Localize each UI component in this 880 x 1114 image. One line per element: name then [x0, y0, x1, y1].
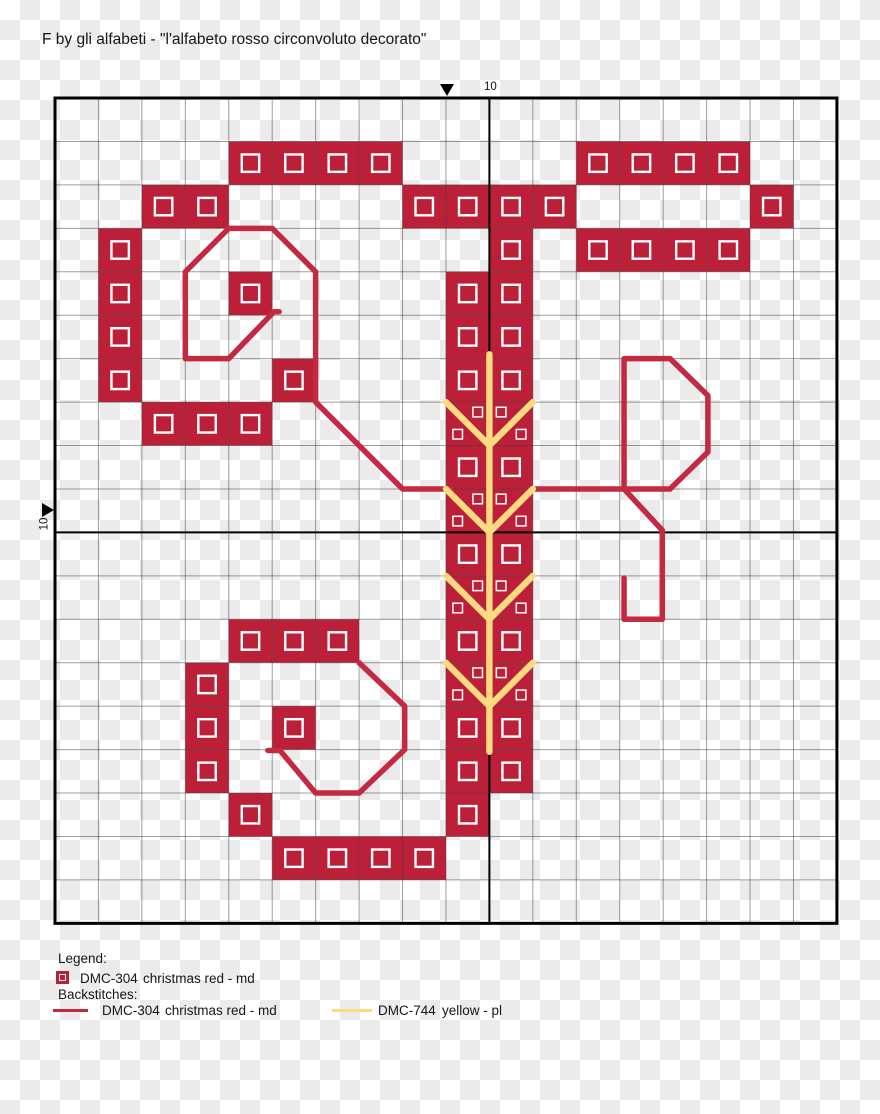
stitch-cell: [446, 315, 489, 358]
stitch-cell: [446, 272, 489, 315]
stitch-cell: [707, 141, 750, 184]
stitch-cell: [229, 619, 272, 662]
stitch-cell: [750, 185, 793, 228]
legend-backstitch-yellow-name: yellow - pl: [442, 1003, 502, 1018]
stitch-cell: [272, 836, 315, 879]
stitch-symbol-icon: [59, 974, 66, 981]
stitch-cell: [446, 750, 489, 793]
stitch-cell: [142, 185, 185, 228]
grid-label-left-10: 10: [38, 518, 50, 531]
stitch-cell: [185, 706, 228, 749]
stitch-cell: [185, 185, 228, 228]
legend-stitch-swatch-icon: [56, 971, 69, 984]
legend-backstitch-red-line-icon: [53, 1009, 88, 1012]
stitch-cell: [98, 228, 141, 271]
stitch-cell: [272, 359, 315, 402]
stitch-cell: [229, 793, 272, 836]
grid-label-top-10: 10: [484, 81, 497, 93]
stitch-cell: [663, 228, 706, 271]
stitch-cell: [272, 619, 315, 662]
legend-heading: Legend:: [58, 951, 107, 966]
legend-backstitch-red-code: DMC-304: [102, 1003, 160, 1018]
backstitch-red: [624, 489, 662, 619]
stitch-cell: [489, 706, 532, 749]
stitch-cell: [446, 185, 489, 228]
stitch-cell: [316, 141, 359, 184]
legend-backstitch-yellow-line-icon: [332, 1009, 372, 1012]
stitch-cell: [98, 315, 141, 358]
stitch-cell: [489, 619, 532, 662]
legend-stitch-name: christmas red - md: [143, 971, 255, 986]
stitch-cell: [229, 141, 272, 184]
stitch-cell: [98, 272, 141, 315]
stitch-cell: [403, 836, 446, 879]
stitch-cell: [489, 315, 532, 358]
stitch-cell: [576, 228, 619, 271]
stitch-cell: [446, 359, 489, 402]
stitch-cell: [272, 141, 315, 184]
stitch-cell: [446, 619, 489, 662]
center-marker-left-arrow-icon: [42, 503, 54, 517]
stitch-cell: [489, 446, 532, 489]
stitch-cell: [316, 836, 359, 879]
stitch-cell: [272, 706, 315, 749]
stitch-cell: [489, 359, 532, 402]
pattern-page: F by gli alfabeti - "l'alfabeto rosso ci…: [0, 0, 880, 1114]
stitch-cell: [489, 750, 532, 793]
stitch-cell: [229, 272, 272, 315]
stitch-cell: [576, 141, 619, 184]
stitch-cell: [620, 141, 663, 184]
legend-backstitch-heading: Backstitches:: [58, 987, 138, 1002]
stitch-cell: [185, 663, 228, 706]
stitch-cell: [446, 532, 489, 575]
legend-backstitch-red-name: christmas red - md: [165, 1003, 277, 1018]
stitch-cell: [489, 532, 532, 575]
stitch-cell: [359, 141, 402, 184]
backstitch-red: [624, 359, 708, 489]
center-marker-top-arrow-icon: [440, 84, 454, 96]
stitch-cell: [489, 272, 532, 315]
legend-backstitch-yellow-code: DMC-744: [378, 1003, 436, 1018]
legend-stitch-code: DMC-304: [80, 971, 138, 986]
stitch-cell: [446, 446, 489, 489]
stitch-cell: [533, 185, 576, 228]
stitch-cell: [185, 750, 228, 793]
stitch-cell: [707, 228, 750, 271]
stitch-cell: [98, 359, 141, 402]
stitch-cell: [142, 402, 185, 445]
stitch-cell: [663, 141, 706, 184]
cross-stitch-chart: [0, 0, 880, 1114]
stitch-cell: [185, 402, 228, 445]
stitch-cell: [489, 228, 532, 271]
stitch-cell: [489, 185, 532, 228]
stitch-cell: [446, 706, 489, 749]
stitch-cell: [229, 402, 272, 445]
stitch-cell: [316, 619, 359, 662]
stitch-cell: [446, 793, 489, 836]
stitch-cell: [403, 185, 446, 228]
stitch-cell: [620, 228, 663, 271]
stitch-cell: [359, 836, 402, 879]
